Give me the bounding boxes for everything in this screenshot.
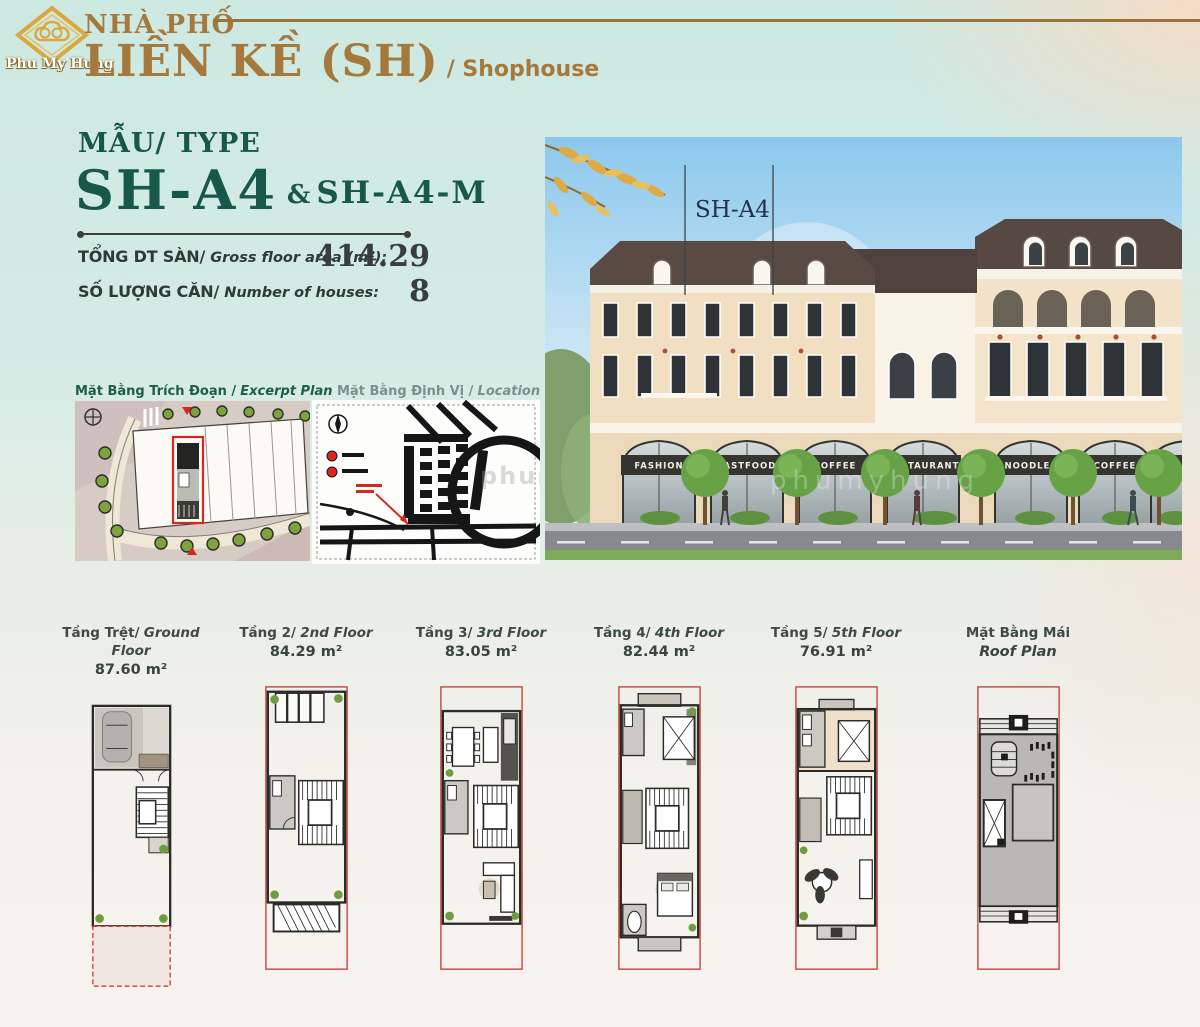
shop-sign: FASHION <box>634 462 683 472</box>
brochure-page: Phu My Hung NHÀ PHỐ LIỀN KỀ (SH)/ Shopho… <box>0 0 1200 1027</box>
floor-4: Tầng 4/ 4th Floor 82.44 m² <box>574 624 744 978</box>
floor-area: 84.29 m² <box>221 644 391 660</box>
watermark-text: phumyhung <box>770 466 980 496</box>
shop-sign: COFFEE <box>1094 462 1137 472</box>
floor-area: Roof Plan <box>933 644 1103 660</box>
watermark-text: phumyhung <box>480 462 540 490</box>
page-title: NHÀ PHỐ LIỀN KỀ (SH)/ Shophouse <box>84 12 599 85</box>
type-divider <box>80 233 408 235</box>
floor-area: 76.91 m² <box>751 644 921 660</box>
floor-roof: Mặt Bằng Mái Roof Plan <box>933 624 1103 978</box>
stat-value: 414.29 <box>315 239 430 274</box>
floor-plan-roof <box>970 684 1067 974</box>
type-label: MẪU/ TYPE <box>78 128 261 159</box>
floor-2: Tầng 2/ 2nd Floor 84.29 m² <box>221 624 391 978</box>
floor-plan-3 <box>433 684 530 974</box>
floor-plan-5 <box>788 684 885 974</box>
floor-ground: Tầng Trệt/ Ground Floor 87.60 m² <box>46 624 216 996</box>
stat-label-vn: SỐ LƯỢNG CĂN/ <box>78 282 219 301</box>
excerpt-plan-label: Mặt Bằng Trích Đoạn / Excerpt Plan <box>75 384 333 399</box>
location-plan-label: Mặt Bằng Định Vị / Location Plan <box>337 384 577 399</box>
building-render: FASHION FASTFOOD COFFEE RESTAURANT NOODL… <box>545 137 1182 560</box>
floor-area: 83.05 m² <box>396 644 566 660</box>
compass-icon <box>85 409 101 425</box>
stat-label-vn: TỔNG DT SÀN/ <box>78 247 205 266</box>
excerpt-plan-image <box>75 401 310 561</box>
stat-gross-floor-area: TỔNG DT SÀN/ Gross floor area (m²): 414.… <box>78 247 430 266</box>
type-code-main: SH-A4 <box>75 158 277 222</box>
type-code-conjunction: & <box>287 180 310 210</box>
floor-plan-4 <box>611 684 708 974</box>
title-subtitle: / Shophouse <box>447 57 600 82</box>
floor-3: Tầng 3/ 3rd Floor 83.05 m² <box>396 624 566 978</box>
location-plan-image: phumyhung <box>312 400 540 564</box>
unit-marker-label: SH-A4 <box>695 197 770 223</box>
title-main: LIỀN KỀ (SH) <box>84 36 439 87</box>
header-rule <box>213 19 1200 22</box>
type-code: SH-A4&SH-A4-M <box>75 158 488 222</box>
type-code-alt: SH-A4-M <box>316 175 487 211</box>
stat-label-en: Number of houses: <box>224 285 379 301</box>
floor-5: Tầng 5/ 5th Floor 76.91 m² <box>751 624 921 978</box>
floor-area: 87.60 m² <box>46 662 216 678</box>
highlighted-lot <box>173 437 203 523</box>
floor-area: 82.44 m² <box>574 644 744 660</box>
stat-number-of-houses: SỐ LƯỢNG CĂN/ Number of houses: 8 <box>78 282 430 301</box>
stat-value: 8 <box>409 274 430 309</box>
floor-plan-2 <box>258 684 355 974</box>
floor-plan-ground <box>83 702 180 992</box>
grass-strip <box>545 550 1182 560</box>
